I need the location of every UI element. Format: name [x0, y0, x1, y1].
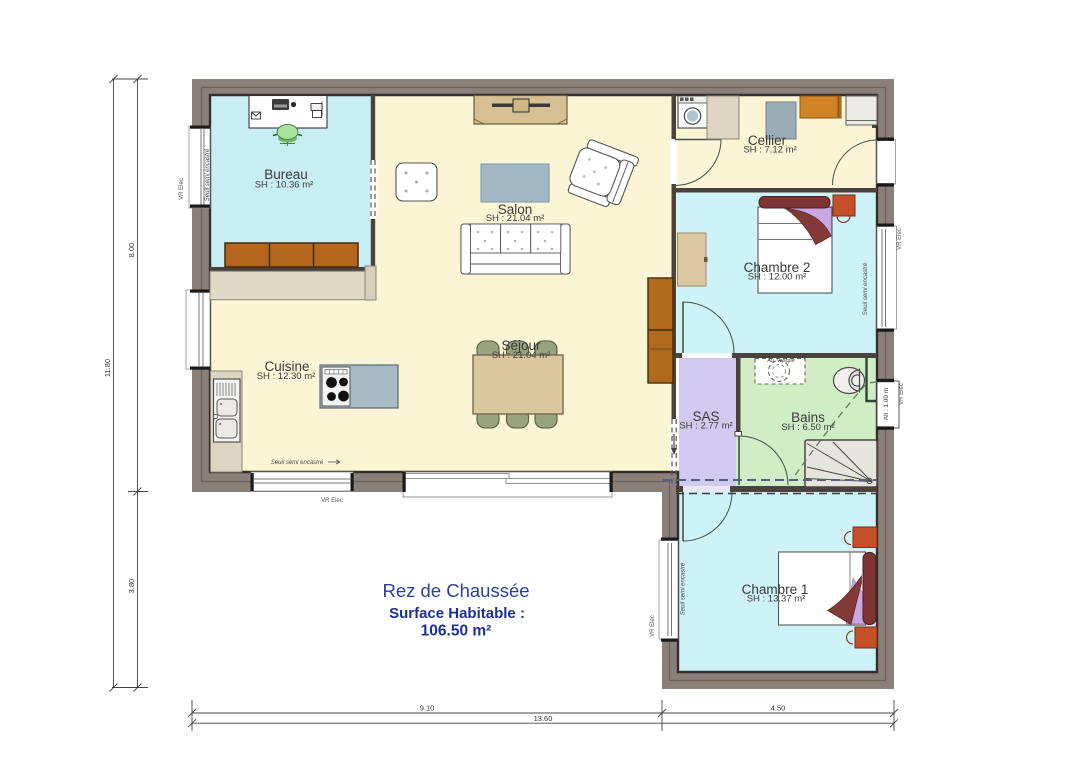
- svg-text:4.50: 4.50: [771, 703, 786, 712]
- svg-text:3.80: 3.80: [127, 579, 136, 594]
- svg-text:9.10: 9.10: [420, 703, 435, 712]
- svg-text:VR Elec: VR Elec: [650, 615, 656, 637]
- svg-text:VR Elec: VR Elec: [321, 498, 343, 504]
- svg-text:Seuil semi encastré: Seuil semi encastré: [271, 460, 324, 466]
- svg-text:13.60: 13.60: [534, 714, 553, 723]
- svg-text:SH : 7.12 m²: SH : 7.12 m²: [743, 145, 796, 156]
- svg-text:SH : 13.37 m²: SH : 13.37 m²: [747, 594, 806, 605]
- svg-text:Seuil semi encastré: Seuil semi encastré: [681, 562, 687, 615]
- svg-text:8.00: 8.00: [127, 243, 136, 258]
- svg-text:SH : 2.77 m²: SH : 2.77 m²: [679, 421, 732, 432]
- svg-text:Au. vasque: Au. vasque: [767, 358, 795, 364]
- svg-text:SH : 6.50 m²: SH : 6.50 m²: [781, 422, 834, 433]
- svg-text:VR Elec: VR Elec: [179, 178, 185, 200]
- svg-text:Seuil semi encastré: Seuil semi encastré: [205, 148, 211, 201]
- svg-text:Seuil semi encastré: Seuil semi encastré: [863, 262, 869, 315]
- svg-text:Rez de Chaussée: Rez de Chaussée: [382, 580, 529, 601]
- svg-text:Surface Habitable :: Surface Habitable :: [389, 605, 525, 622]
- svg-text:VR Elec: VR Elec: [897, 228, 903, 250]
- svg-text:106.50 m²: 106.50 m²: [421, 623, 492, 640]
- svg-text:11.80: 11.80: [103, 359, 112, 377]
- svg-text:All : 1.00 m: All : 1.00 m: [883, 388, 890, 421]
- svg-text:SH : 10.36 m²: SH : 10.36 m²: [255, 180, 314, 191]
- svg-text:VR Elec: VR Elec: [899, 383, 905, 405]
- svg-text:SH : 12.30 m²: SH : 12.30 m²: [257, 371, 316, 382]
- svg-text:SH : 12.00 m²: SH : 12.00 m²: [748, 272, 807, 283]
- svg-text:SH : 21.04 m²: SH : 21.04 m²: [492, 350, 551, 361]
- svg-text:SH : 21.04 m²: SH : 21.04 m²: [486, 213, 545, 224]
